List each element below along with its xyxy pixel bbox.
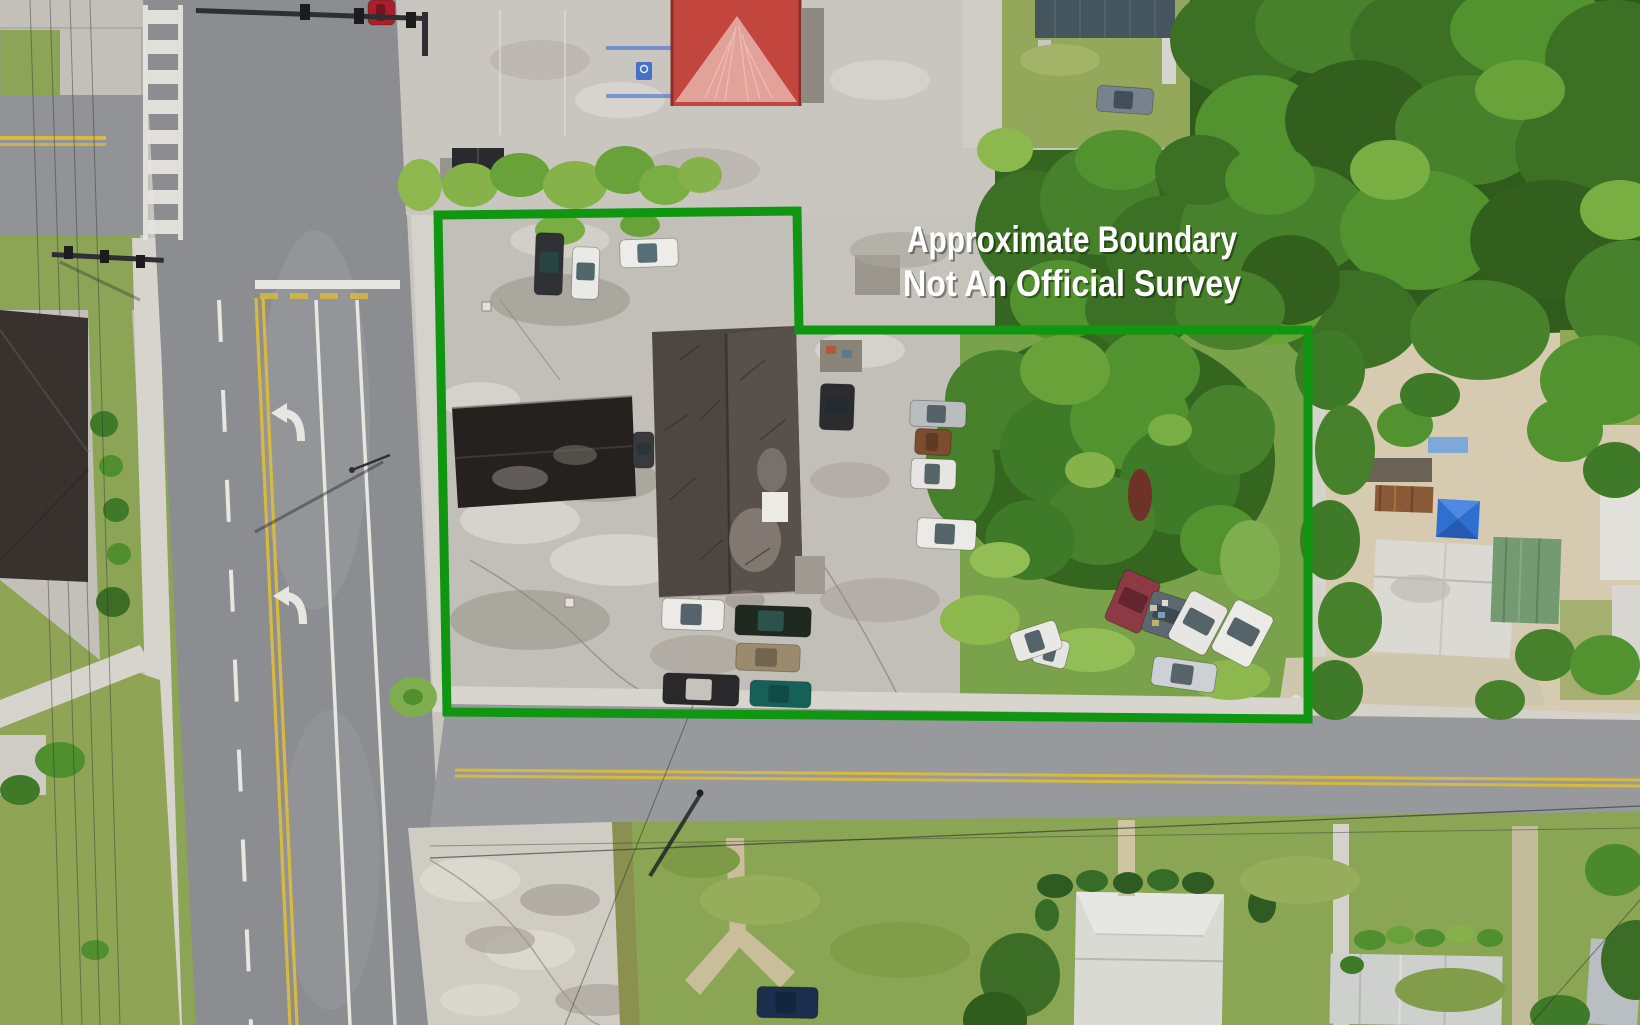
tree-canopy xyxy=(1182,872,1214,894)
tree-canopy xyxy=(35,742,85,778)
tree-canopy xyxy=(398,159,442,211)
aerial-photo-stage: Approximate Boundary Approximate Boundar… xyxy=(0,0,1640,1025)
vehicle-windshield xyxy=(1113,90,1133,109)
vehicle xyxy=(819,383,855,430)
annotation-line2: Not An Official Survey xyxy=(903,263,1241,304)
tree-canopy xyxy=(103,498,129,522)
vehicle-windshield xyxy=(1170,663,1194,686)
tree-canopy xyxy=(1240,856,1360,904)
vehicle xyxy=(633,432,654,468)
tree-canopy xyxy=(1410,280,1550,380)
tree-canopy xyxy=(442,163,498,207)
tree-canopy xyxy=(1185,385,1275,475)
tree-canopy xyxy=(1113,872,1143,894)
tree-canopy xyxy=(700,875,820,925)
vehicle-windshield xyxy=(680,604,702,626)
main-building xyxy=(652,326,803,610)
vehicle xyxy=(750,680,812,708)
vehicle-windshield xyxy=(768,685,789,703)
tree-canopy xyxy=(81,940,109,960)
vehicle-windshield xyxy=(934,523,955,544)
tree-canopy xyxy=(1446,925,1474,943)
blue-canopy xyxy=(1436,499,1480,539)
tree-canopy xyxy=(1350,140,1430,200)
vehicle xyxy=(910,458,956,490)
tree-canopy xyxy=(490,153,550,197)
tree-canopy xyxy=(940,595,1020,645)
bottom-house xyxy=(1074,892,1224,1025)
tree-canopy xyxy=(1307,660,1363,720)
dirt-path xyxy=(1512,826,1538,1025)
vehicle xyxy=(734,605,811,638)
green-metal-roof xyxy=(1491,537,1562,624)
vehicle-windshield xyxy=(926,405,946,423)
tree-canopy xyxy=(1037,874,1073,898)
rear-junk xyxy=(802,8,824,103)
vehicle-windshield xyxy=(576,262,595,280)
tree-canopy xyxy=(1318,582,1382,658)
tree-canopy xyxy=(830,922,970,978)
vehicle xyxy=(571,247,600,300)
tree-canopy xyxy=(1220,520,1280,600)
vehicle-windshield xyxy=(755,648,777,667)
tree-canopy xyxy=(1477,929,1503,947)
side-street xyxy=(0,95,148,235)
tree-canopy xyxy=(1020,335,1110,405)
annotation: Approximate Boundary Approximate Boundar… xyxy=(903,219,1243,306)
aerial-photo: Approximate Boundary Approximate Boundar… xyxy=(0,0,1640,1025)
vehicle-windshield xyxy=(637,243,657,263)
vehicle xyxy=(534,233,564,296)
tree-canopy xyxy=(1475,60,1565,120)
vehicle-windshield xyxy=(825,397,849,413)
tree-canopy xyxy=(107,543,131,565)
annotation-line1: Approximate Boundary xyxy=(907,219,1237,260)
vehicle-windshield xyxy=(636,443,650,455)
tree-canopy xyxy=(1065,452,1115,488)
tree-canopy xyxy=(977,128,1033,172)
vehicle-windshield xyxy=(685,678,712,700)
vehicle xyxy=(368,0,395,25)
side-street-yellow-line xyxy=(0,136,106,140)
tree-canopy xyxy=(1147,869,1179,891)
vehicle-windshield xyxy=(775,992,796,1013)
junk-car-under-trees xyxy=(1128,469,1152,521)
tree-canopy xyxy=(1386,926,1414,944)
vehicle-windshield xyxy=(757,610,784,631)
tree-canopy xyxy=(1400,373,1460,417)
vehicle-windshield xyxy=(539,251,559,273)
west-wing-building xyxy=(452,396,636,508)
rusty-shed-roof xyxy=(1375,485,1434,513)
vehicle xyxy=(910,400,967,428)
vehicle xyxy=(914,428,951,456)
tree-canopy xyxy=(1515,629,1575,681)
tree-canopy xyxy=(403,689,423,705)
vehicle xyxy=(620,238,679,268)
tree-canopy xyxy=(99,455,123,477)
tree-canopy xyxy=(1225,145,1315,215)
vehicle xyxy=(662,673,739,707)
tree-canopy xyxy=(90,411,118,437)
vehicle xyxy=(916,517,976,550)
tree-canopy xyxy=(1415,929,1445,947)
vehicle xyxy=(736,643,801,672)
handicap-symbol xyxy=(636,62,652,80)
tree-canopy xyxy=(1020,44,1100,76)
trailer-junk xyxy=(820,340,862,372)
vehicle-windshield xyxy=(925,433,938,451)
blue-stall-line xyxy=(606,46,672,50)
tree-canopy xyxy=(96,587,130,617)
tree-canopy xyxy=(1570,635,1640,695)
red-roof-building xyxy=(672,0,800,106)
tree-canopy xyxy=(1315,405,1375,495)
vehicle-windshield xyxy=(924,463,940,484)
white-canopy xyxy=(762,492,788,522)
tree-canopy xyxy=(1100,330,1200,410)
stop-bar xyxy=(255,280,400,289)
tree-canopy xyxy=(1354,930,1386,950)
tree-canopy xyxy=(0,775,40,805)
blue-tarp xyxy=(1428,437,1468,453)
tree-canopy xyxy=(678,157,722,193)
tree-canopy xyxy=(1475,680,1525,720)
tree-canopy xyxy=(1148,414,1192,446)
vehicle xyxy=(661,598,724,631)
tree-canopy xyxy=(1075,130,1165,190)
tree-canopy xyxy=(1340,956,1364,974)
vehicle xyxy=(1096,85,1154,115)
tree-canopy xyxy=(1035,899,1059,931)
rear-garage xyxy=(795,556,825,594)
tree-canopy xyxy=(970,542,1030,578)
blue-stall-line xyxy=(606,94,672,98)
tree-canopy xyxy=(1076,870,1108,892)
tree-canopy xyxy=(1395,968,1505,1012)
vehicle xyxy=(757,986,819,1018)
